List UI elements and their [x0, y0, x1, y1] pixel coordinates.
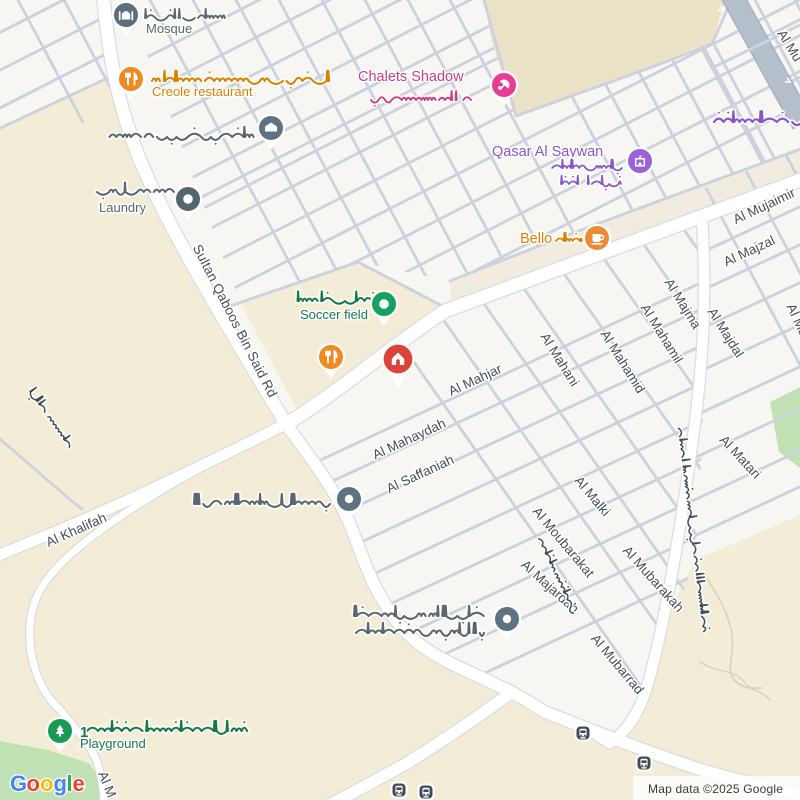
svg-text:Bello: Bello [520, 231, 552, 247]
svg-text:Soccer field: Soccer field [300, 307, 368, 322]
svg-text:e: e [73, 771, 85, 796]
svg-text:o: o [27, 771, 40, 796]
svg-text:Playground: Playground [80, 736, 146, 751]
svg-text:Map data ©2025 Google: Map data ©2025 Google [648, 782, 783, 796]
svg-text:o: o [40, 771, 53, 796]
svg-text:Chalets Shadow: Chalets Shadow [358, 69, 464, 85]
svg-text:Mosque: Mosque [146, 21, 192, 36]
svg-text:Qasar Al Saywan: Qasar Al Saywan [492, 144, 603, 160]
svg-text:Laundry: Laundry [99, 200, 146, 215]
svg-text:g: g [54, 771, 67, 796]
svg-text:G: G [10, 771, 27, 796]
svg-text:Creole restaurant: Creole restaurant [152, 84, 253, 99]
